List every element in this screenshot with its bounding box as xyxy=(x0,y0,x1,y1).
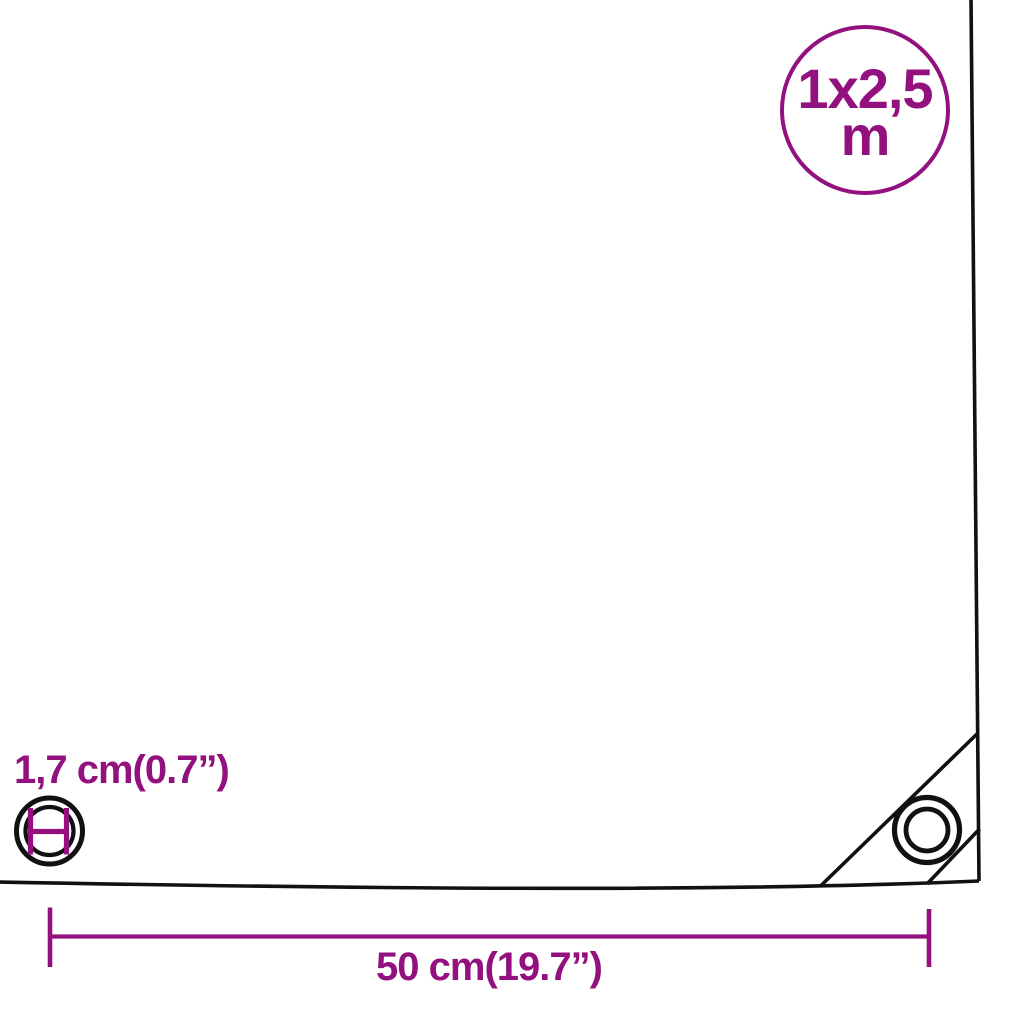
product-dimension-image: 1x2,5 m 1,7 cm(0.7”) 50 cm(19.7”) xyxy=(0,0,1024,1024)
size-badge: 1x2,5 m xyxy=(780,25,950,195)
grommet-inner-ring xyxy=(906,809,948,851)
eyelet-diameter-icon xyxy=(17,798,83,864)
corner-grommet-icon xyxy=(895,798,960,863)
tarp-bottom-edge xyxy=(0,881,979,888)
grommet-spacing-label: 50 cm(19.7”) xyxy=(49,944,929,990)
size-badge-unit: m xyxy=(841,112,890,159)
tarp-right-edge xyxy=(971,0,979,881)
eyelet-diameter-label: 1,7 cm(0.7”) xyxy=(14,748,229,792)
